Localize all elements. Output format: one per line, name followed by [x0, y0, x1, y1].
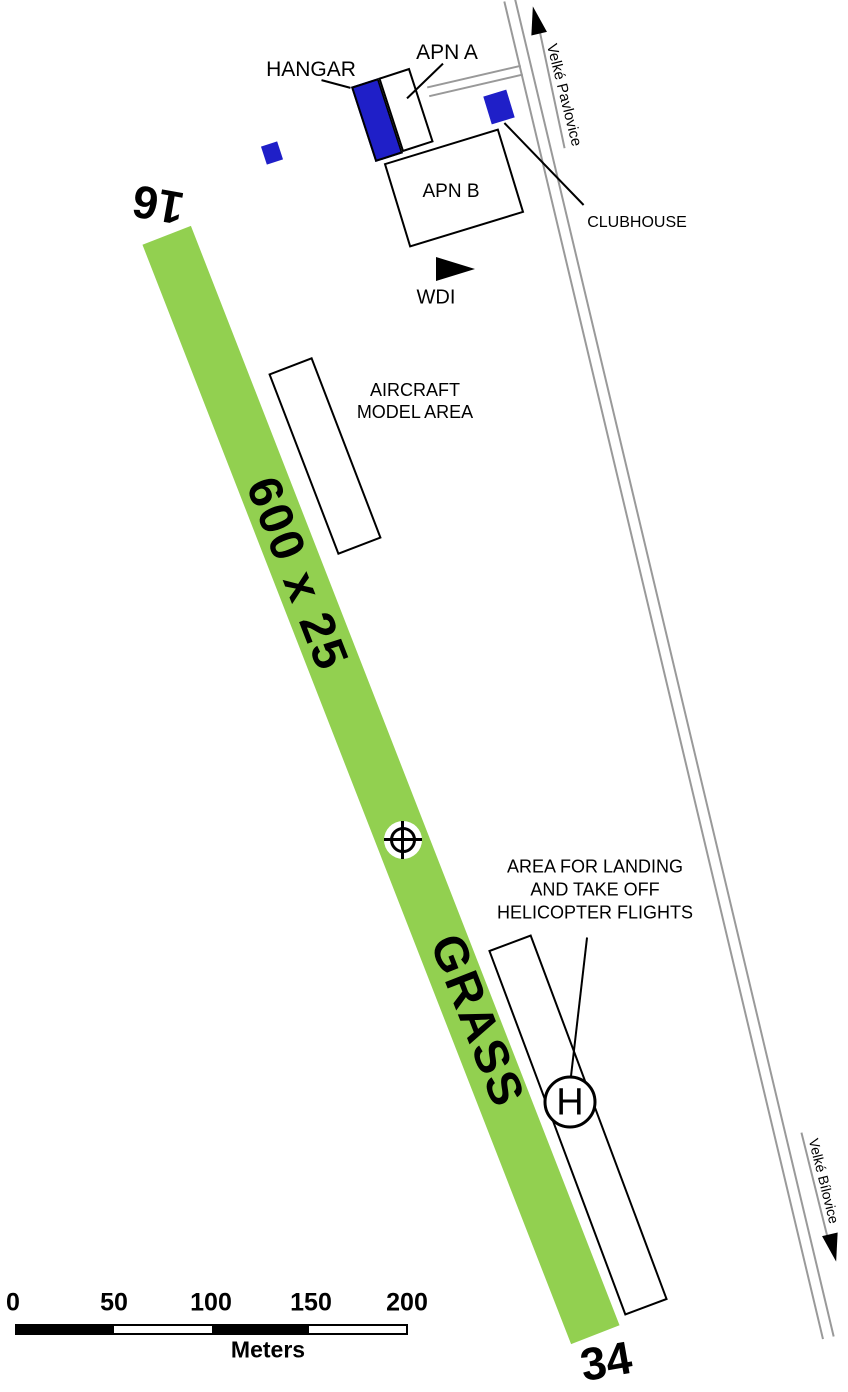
- wdi-label: WDI: [417, 287, 456, 310]
- scale-tick-150: 150: [290, 1289, 332, 1318]
- scale-bar: [15, 1324, 408, 1335]
- helicopter-leader-line: [570, 937, 588, 1076]
- clubhouse-building: [483, 90, 514, 125]
- main-road: [503, 0, 834, 1339]
- helipad-circle: H: [544, 1076, 597, 1129]
- helicopter-area-label: AREA FOR LANDING AND TAKE OFF HELICOPTER…: [497, 856, 693, 925]
- small-building: [261, 141, 283, 164]
- scale-bar-segment-2: [114, 1326, 211, 1333]
- runway-designator-16: 16: [128, 174, 188, 236]
- wind-direction-indicator-icon: [436, 257, 475, 281]
- scale-tick-100: 100: [190, 1289, 232, 1318]
- scale-tick-50: 50: [100, 1289, 128, 1318]
- scale-bar-segment-1: [17, 1326, 114, 1333]
- up-arrow-icon: [525, 5, 547, 36]
- helicopter-area-label-line3: HELICOPTER FLIGHTS: [497, 902, 693, 925]
- road-south-label: Velké Bílovice: [806, 1137, 843, 1225]
- scale-bar-segment-4: [309, 1326, 406, 1333]
- road-north-label: Velké Pavlovice: [543, 42, 585, 148]
- apron-access-road: [427, 65, 523, 97]
- aerodrome-diagram: Velké Pavlovice Velké Bílovice 16 34 600…: [0, 0, 848, 1392]
- helicopter-area-label-line1: AREA FOR LANDING: [497, 856, 693, 879]
- aircraft-model-area-label-line1: AIRCRAFT: [357, 379, 473, 401]
- apron-a-label: APN A: [416, 41, 478, 65]
- aircraft-model-area-label: AIRCRAFT MODEL AREA: [357, 379, 473, 423]
- arp-symbol-icon: [384, 821, 422, 859]
- arp-circle: [390, 827, 416, 853]
- scale-tick-200: 200: [386, 1289, 428, 1318]
- apron-b-label: APN B: [422, 181, 479, 203]
- scale-bar-segment-3: [212, 1326, 309, 1333]
- helicopter-area-label-line2: AND TAKE OFF: [497, 879, 693, 902]
- helipad-letter: H: [556, 1083, 583, 1121]
- hangar-label: HANGAR: [266, 58, 356, 82]
- scale-tick-0: 0: [6, 1289, 20, 1318]
- clubhouse-label: CLUBHOUSE: [587, 214, 687, 232]
- scale-unit-label: Meters: [231, 1337, 305, 1364]
- down-arrow-icon: [822, 1233, 844, 1264]
- aircraft-model-area-label-line2: MODEL AREA: [357, 401, 473, 423]
- runway-designator-34: 34: [576, 1330, 636, 1392]
